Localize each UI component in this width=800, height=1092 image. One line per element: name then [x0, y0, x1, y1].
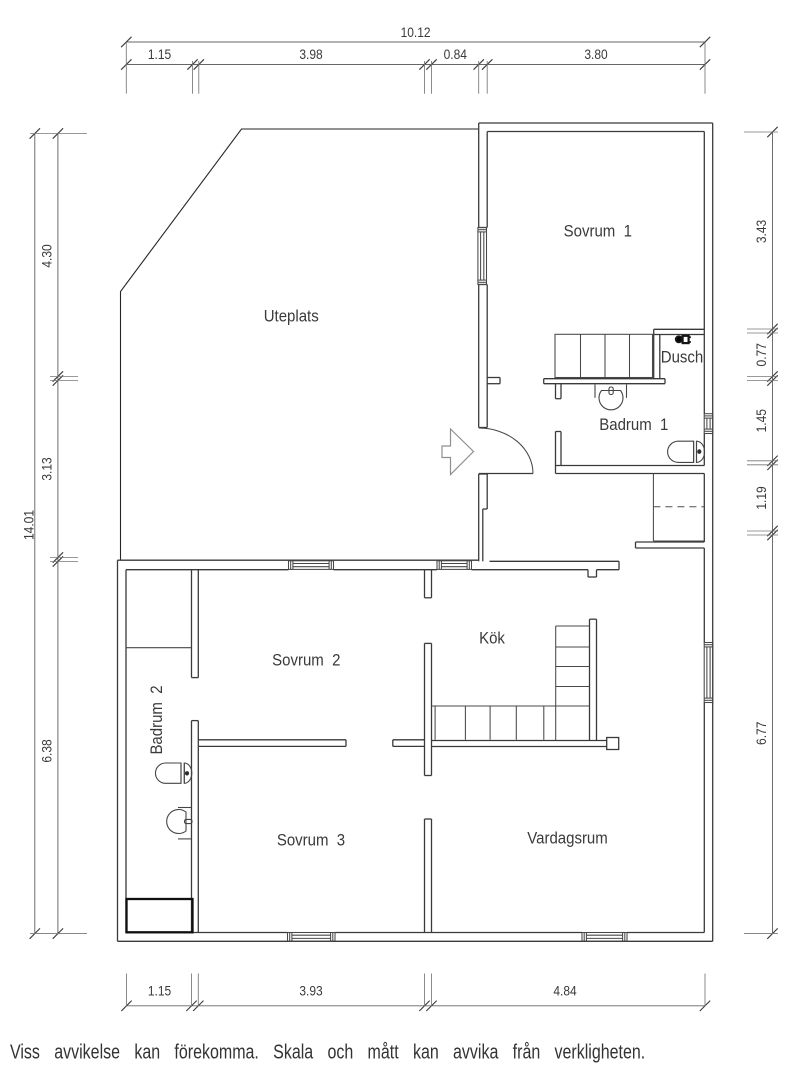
svg-text:4.30: 4.30	[38, 244, 54, 267]
svg-text:3.43: 3.43	[753, 220, 769, 243]
svg-text:0.84: 0.84	[444, 46, 467, 62]
svg-text:1.15: 1.15	[148, 982, 171, 998]
svg-text:Uteplats: Uteplats	[264, 308, 319, 326]
svg-text:Badrum 1: Badrum 1	[599, 416, 668, 434]
svg-text:3.98: 3.98	[299, 46, 322, 62]
svg-text:3.13: 3.13	[38, 457, 54, 480]
svg-text:Badrum 2: Badrum 2	[148, 685, 166, 754]
svg-text:Kök: Kök	[479, 630, 505, 648]
svg-text:Dusch: Dusch	[661, 349, 703, 367]
svg-text:14.01: 14.01	[21, 510, 37, 540]
svg-text:Sovrum 2: Sovrum 2	[272, 652, 340, 670]
svg-text:1.15: 1.15	[148, 46, 171, 62]
svg-text:1.45: 1.45	[753, 409, 769, 432]
svg-text:6.77: 6.77	[753, 722, 769, 745]
svg-text:10.12: 10.12	[401, 24, 431, 40]
svg-text:3.93: 3.93	[299, 982, 322, 998]
svg-text:Viss avvikelse kan förekomm: Viss avvikelse kan förekomma. Skala och …	[10, 1041, 645, 1063]
svg-text:3.80: 3.80	[584, 46, 607, 62]
svg-text:6.38: 6.38	[38, 739, 54, 762]
svg-text:1.19: 1.19	[753, 486, 769, 509]
svg-text:4.84: 4.84	[553, 982, 576, 998]
svg-text:Sovrum 1: Sovrum 1	[564, 223, 632, 241]
svg-text:Sovrum 3: Sovrum 3	[277, 832, 345, 850]
svg-text:0.77: 0.77	[753, 343, 769, 366]
svg-text:Vardagsrum: Vardagsrum	[527, 830, 608, 848]
